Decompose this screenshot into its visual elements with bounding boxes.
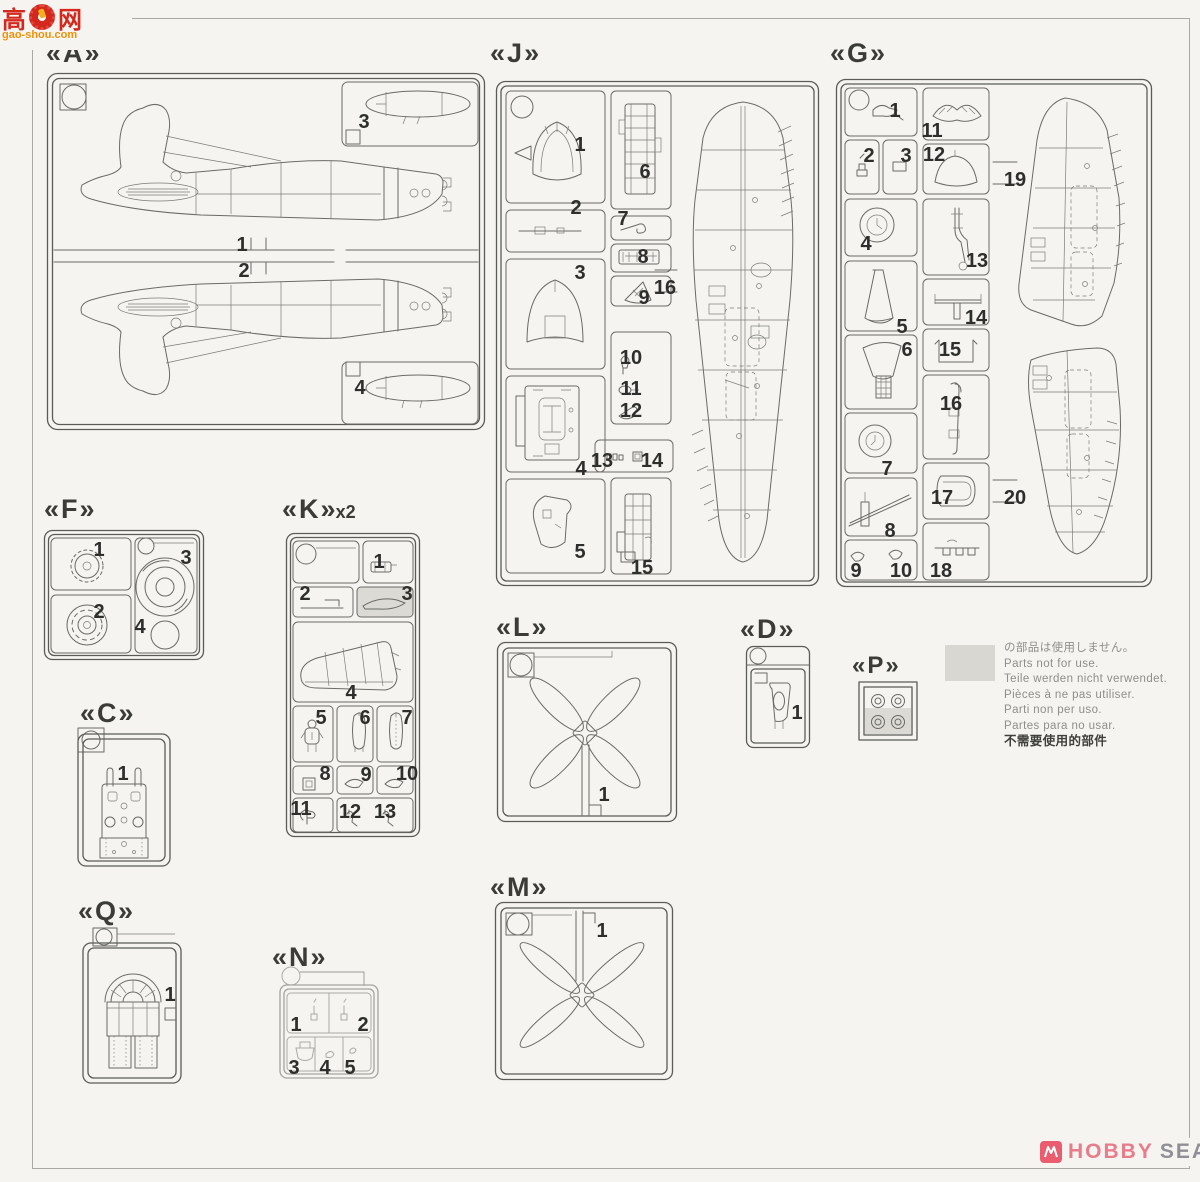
clear-small-parts xyxy=(296,999,356,1061)
part-number: 5 xyxy=(344,1057,355,1079)
part-number: 5 xyxy=(315,707,326,729)
part-number: 11 xyxy=(620,378,641,400)
propeller-part xyxy=(523,671,646,794)
part-number: 16 xyxy=(940,393,962,415)
part-number: 3 xyxy=(900,145,911,167)
part-number: 7 xyxy=(881,458,892,480)
part-number: 10 xyxy=(396,763,418,785)
sprue-d-label: D xyxy=(740,614,794,645)
part-number: 7 xyxy=(617,208,628,230)
part-number: 1 xyxy=(373,551,384,573)
parts-not-for-use-legend: の部品は使用しません。 Parts not for use. Teile wer… xyxy=(1004,641,1194,750)
part-number: 3 xyxy=(358,111,369,133)
cockpit-floor-part xyxy=(516,386,579,460)
sprue-k-multiplier: x2 xyxy=(336,502,356,522)
sprue-q-drawing: 1 xyxy=(81,928,183,1085)
sprue-m-label: M xyxy=(490,872,547,903)
part-number: 13 xyxy=(591,450,613,472)
legend-line-it: Parti non per uso. xyxy=(1004,703,1194,719)
part-number: 1 xyxy=(596,920,607,942)
part-number: 10 xyxy=(620,347,642,369)
fuselage-half-part xyxy=(81,104,451,220)
part-number: 4 xyxy=(134,616,146,638)
part-number: 3 xyxy=(180,547,191,569)
part-number: 4 xyxy=(319,1057,331,1079)
watermark-site: gao-shou.com xyxy=(2,29,132,41)
runner-frame xyxy=(498,643,677,822)
part-number: 14 xyxy=(641,450,664,472)
gate-circle xyxy=(62,85,86,109)
sprue-m-drawing: 1 xyxy=(494,901,674,1081)
sprue-j-drawing: 1 2 3 4 5 6 7 8 9 10 11 12 13 14 15 16 xyxy=(495,80,820,587)
logo-text-search: SEARCH xyxy=(1160,1140,1200,1164)
part-number: 10 xyxy=(890,560,912,582)
part-number: 20 xyxy=(1004,487,1026,509)
part-number: 13 xyxy=(374,801,396,823)
part-number: 2 xyxy=(863,145,874,167)
gate-circle xyxy=(282,967,300,985)
sprue-d-drawing: 1 xyxy=(745,645,811,749)
part-number: 16 xyxy=(654,277,676,299)
gate-circle xyxy=(511,96,533,118)
not-used-swatch xyxy=(945,645,995,681)
part-number: 9 xyxy=(638,287,649,309)
sprue-a-drawing: 1 2 3 4 xyxy=(46,72,486,432)
sprue-g-label: G xyxy=(830,38,885,69)
sprue-c-drawing: 1 xyxy=(76,726,172,868)
runner-frame xyxy=(83,943,181,1083)
part-number: 4 xyxy=(575,458,587,480)
sprue-f-label: F xyxy=(44,494,95,525)
part-number: 2 xyxy=(570,197,581,219)
legend-line-de: Teile werden nicht verwendet. xyxy=(1004,672,1194,688)
part-number: 9 xyxy=(850,560,861,582)
part-number: 1 xyxy=(117,763,128,785)
part-number: 5 xyxy=(574,541,585,563)
runner-stem xyxy=(582,745,589,815)
legend-line-es: Partes para no usar. xyxy=(1004,719,1194,735)
wing-part xyxy=(692,102,794,562)
sprue-f-drawing: 1 2 3 4 xyxy=(43,529,205,661)
part-number: 1 xyxy=(93,539,104,561)
part-number: 1 xyxy=(574,134,585,156)
part-number: 8 xyxy=(319,763,330,785)
gate-circle xyxy=(510,654,532,676)
runner-notch xyxy=(165,1008,175,1020)
hobby-search-logo: HOBBY SEARCH xyxy=(1030,1138,1200,1166)
sprue-p-label: P xyxy=(852,652,899,680)
part-number: 17 xyxy=(931,487,953,509)
runner-notch xyxy=(589,805,601,815)
part-number: 2 xyxy=(357,1014,368,1036)
canopy-part xyxy=(105,974,161,1068)
sprue-c-label: C xyxy=(80,698,134,729)
runner-frame xyxy=(747,647,810,748)
gate-circle xyxy=(849,90,869,110)
wing-panel-part xyxy=(1019,98,1125,326)
hobby-search-icon xyxy=(1040,1141,1062,1163)
part-number: 1 xyxy=(791,702,802,724)
part-number: 6 xyxy=(359,707,370,729)
small-rod-part xyxy=(519,227,581,234)
part-number: 2 xyxy=(299,583,310,605)
part-number: 7 xyxy=(401,707,412,729)
part-number: 11 xyxy=(290,798,311,820)
part-number: 3 xyxy=(401,583,412,605)
legend-line-jp: の部品は使用しません。 xyxy=(1004,641,1194,657)
part-number: 1 xyxy=(598,784,609,806)
sprue-l-label: L xyxy=(496,612,547,643)
sprue-j-label: J xyxy=(490,38,539,69)
sprue-q-label: Q xyxy=(78,896,133,927)
part-number: 15 xyxy=(631,557,653,579)
legend-line-en: Parts not for use. xyxy=(1004,657,1194,673)
small-parts xyxy=(607,224,659,461)
runner-notch xyxy=(583,913,595,923)
part-number: 8 xyxy=(884,520,895,542)
part-number: 5 xyxy=(896,316,907,338)
part-number: 19 xyxy=(1004,169,1026,191)
part-number: 15 xyxy=(939,339,961,361)
sprue-g-drawing: 1 2 3 4 5 6 7 8 9 10 11 12 13 14 15 16 1… xyxy=(835,78,1153,588)
sprue-p-drawing xyxy=(858,681,918,741)
wheel-part xyxy=(151,621,179,649)
runner-frame xyxy=(48,74,485,430)
runner-stem xyxy=(576,911,583,981)
cowl-flap-part xyxy=(527,280,583,342)
part-number: 6 xyxy=(901,339,912,361)
part-number: 12 xyxy=(339,801,361,823)
gate-circle xyxy=(750,648,766,664)
sprue-k-label: Kx2 xyxy=(282,494,356,525)
part-number: 6 xyxy=(639,161,650,183)
part-number: 1 xyxy=(889,100,900,122)
part-number: 3 xyxy=(574,262,585,284)
logo-text-hobby: HOBBY xyxy=(1068,1140,1154,1164)
part-number: 1 xyxy=(164,984,175,1006)
part-number: 14 xyxy=(965,307,988,329)
part-number: 11 xyxy=(921,120,942,142)
sprue-k-drawing: 1 2 3 4 5 6 7 8 9 10 11 12 13 xyxy=(285,532,421,838)
part-number: 8 xyxy=(637,246,648,268)
bulkhead-part xyxy=(533,496,571,548)
part-number: 1 xyxy=(236,234,247,256)
drop-tank-part xyxy=(366,375,470,408)
part-number: 9 xyxy=(360,764,371,786)
cowling-front-part xyxy=(515,122,581,180)
part-number: 2 xyxy=(93,601,104,623)
legend-line-fr: Pièces à ne pas utiliser. xyxy=(1004,688,1194,704)
gate-circle xyxy=(507,913,529,935)
drop-tank-part xyxy=(366,91,470,124)
wing-panel-part xyxy=(1029,348,1121,554)
sprue-n-drawing: 1 2 3 4 5 xyxy=(278,962,380,1080)
part-number: 18 xyxy=(930,560,952,582)
parts-diagram-page: 高 网 gao-shou.com A J G F Kx2 C L D P Q N… xyxy=(0,0,1200,1182)
gate-circle xyxy=(296,544,316,564)
part-number: 12 xyxy=(620,400,642,422)
sprue-l-drawing: 1 xyxy=(496,641,678,823)
part-number: 12 xyxy=(923,144,945,166)
part-number: 1 xyxy=(290,1014,301,1036)
part-number: 4 xyxy=(860,233,872,255)
propeller-part xyxy=(515,937,649,1054)
part-number: 4 xyxy=(345,682,357,704)
watermark: 高 网 gao-shou.com xyxy=(2,2,132,50)
gear-thumb-icon xyxy=(29,4,55,30)
part-number: 4 xyxy=(354,377,366,399)
part-number: 13 xyxy=(966,250,988,272)
console-part xyxy=(617,494,651,562)
part-number: 2 xyxy=(238,260,249,282)
part-number: 3 xyxy=(288,1057,299,1079)
intake-part xyxy=(770,683,791,729)
legend-line-zh: 不需要使用的部件 xyxy=(1004,734,1194,750)
gate-circle xyxy=(138,538,154,554)
